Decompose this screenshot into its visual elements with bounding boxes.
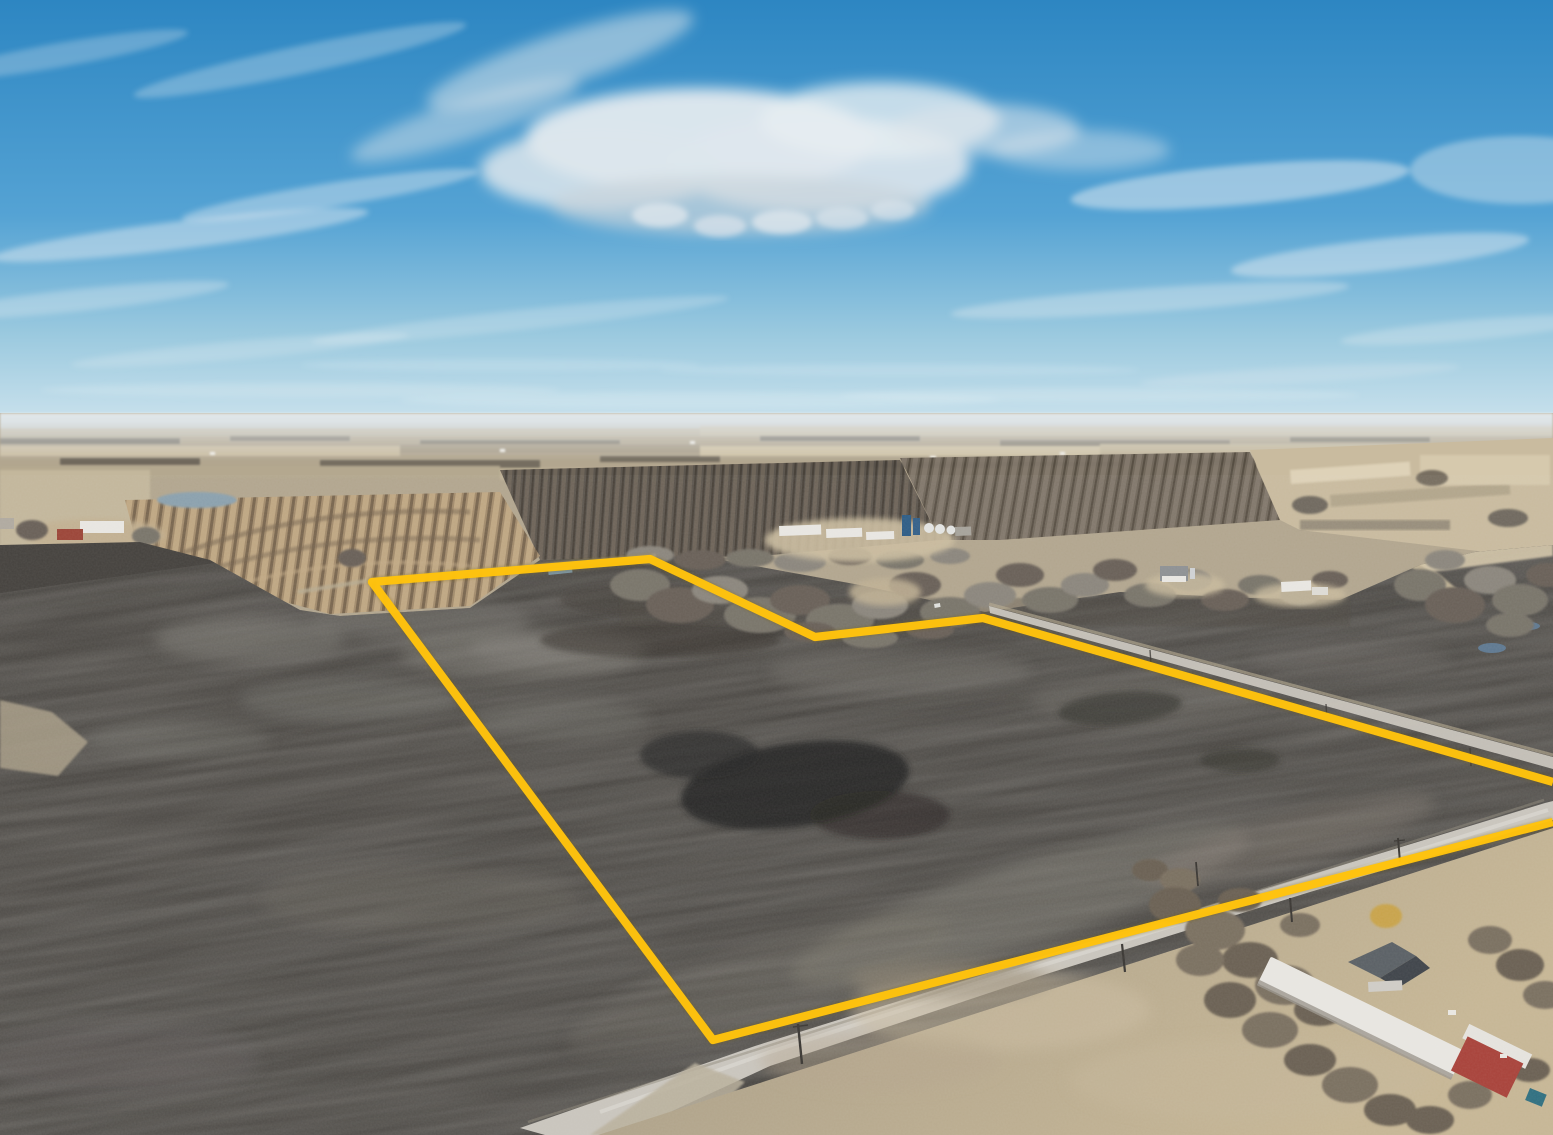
aerial-photo-viewport: [0, 0, 1553, 1135]
white-silo-dome: [935, 524, 945, 534]
pond: [157, 492, 237, 508]
white-shed: [779, 525, 821, 536]
white-silo-dome: [947, 526, 956, 535]
gray-building: [0, 518, 14, 529]
white-barn: [80, 521, 124, 533]
blue-silo-small: [913, 518, 920, 535]
blue-silo: [902, 515, 911, 536]
film-grain: [0, 535, 1553, 1135]
white-silo-dome: [924, 523, 934, 533]
aerial-photo: [0, 0, 1553, 1135]
gray-shed: [955, 526, 971, 536]
